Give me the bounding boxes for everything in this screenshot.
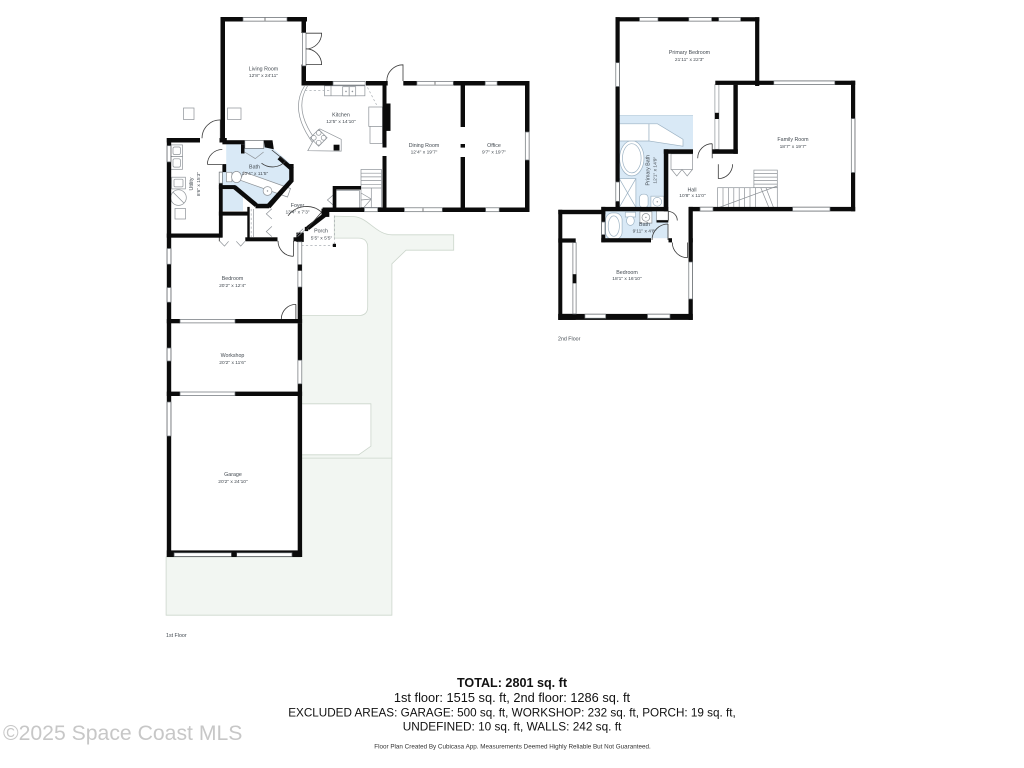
svg-text:12'5" x 14'10": 12'5" x 14'10" xyxy=(326,119,356,125)
svg-text:1st Floor: 1st Floor xyxy=(166,633,187,639)
svg-text:Office: Office xyxy=(487,143,501,149)
svg-text:Bedroom: Bedroom xyxy=(616,270,638,276)
svg-text:©2025 Space Coast MLS: ©2025 Space Coast MLS xyxy=(3,722,242,745)
svg-text:Floor Plan Created By Cubicasa: Floor Plan Created By Cubicasa App. Meas… xyxy=(374,744,651,751)
svg-text:Foyer: Foyer xyxy=(291,203,305,209)
svg-text:10'4" x 11'5": 10'4" x 11'5" xyxy=(242,171,269,177)
svg-text:10'8" x 11'0": 10'8" x 11'0" xyxy=(679,193,706,199)
svg-text:Porch: Porch xyxy=(314,229,328,235)
svg-text:18'7" x 19'7": 18'7" x 19'7" xyxy=(780,144,807,150)
svg-text:Bath: Bath xyxy=(639,222,650,228)
svg-text:Primary Bedroom: Primary Bedroom xyxy=(669,50,711,56)
svg-text:20'2" x 24'10": 20'2" x 24'10" xyxy=(218,479,248,485)
svg-text:5'5" x 5'5": 5'5" x 5'5" xyxy=(311,236,333,242)
svg-text:Workshop: Workshop xyxy=(221,353,245,359)
svg-text:Dining Room: Dining Room xyxy=(409,143,440,149)
svg-text:18'1" x 16'10": 18'1" x 16'10" xyxy=(612,276,642,282)
svg-text:20'2" x 11'6": 20'2" x 11'6" xyxy=(219,360,246,366)
svg-text:12'4" x 19'7": 12'4" x 19'7" xyxy=(411,150,438,156)
svg-text:9'7" x 19'7": 9'7" x 19'7" xyxy=(482,150,506,156)
svg-text:21'11" x 22'3": 21'11" x 22'3" xyxy=(675,57,704,63)
svg-text:Family Room: Family Room xyxy=(777,137,809,143)
svg-text:Primary Bath: Primary Bath xyxy=(646,155,652,186)
svg-text:Kitchen: Kitchen xyxy=(332,113,350,119)
svg-text:Bath: Bath xyxy=(249,165,260,171)
svg-text:Garage: Garage xyxy=(224,472,242,478)
svg-text:12'1" x 14'9": 12'1" x 14'9" xyxy=(653,157,659,184)
svg-text:TOTAL: 2801 sq. ft: TOTAL: 2801 sq. ft xyxy=(457,676,568,690)
svg-text:Hall: Hall xyxy=(687,188,696,194)
svg-text:1st floor: 1515 sq. ft, 2nd fl: 1st floor: 1515 sq. ft, 2nd floor: 1286 … xyxy=(394,690,631,705)
svg-text:13'4" x 7'3": 13'4" x 7'3" xyxy=(285,210,309,216)
svg-text:12'8" x 24'11": 12'8" x 24'11" xyxy=(249,73,278,79)
svg-text:8'6" x 15'3": 8'6" x 15'3" xyxy=(196,172,202,196)
svg-text:2nd Floor: 2nd Floor xyxy=(558,337,581,343)
svg-text:Bedroom: Bedroom xyxy=(222,276,244,282)
svg-text:EXCLUDED AREAS: GARAGE: 500 sq: EXCLUDED AREAS: GARAGE: 500 sq. ft, WORK… xyxy=(288,707,736,720)
svg-text:Utility: Utility xyxy=(189,177,195,190)
svg-text:UNDEFINED: 10 sq. ft, WALLS: 2: UNDEFINED: 10 sq. ft, WALLS: 242 sq. ft xyxy=(403,720,622,734)
svg-text:20'2" x 12'4": 20'2" x 12'4" xyxy=(219,283,246,289)
svg-text:9'11" x 4'8": 9'11" x 4'8" xyxy=(633,229,657,235)
svg-text:Living Room: Living Room xyxy=(249,67,279,73)
